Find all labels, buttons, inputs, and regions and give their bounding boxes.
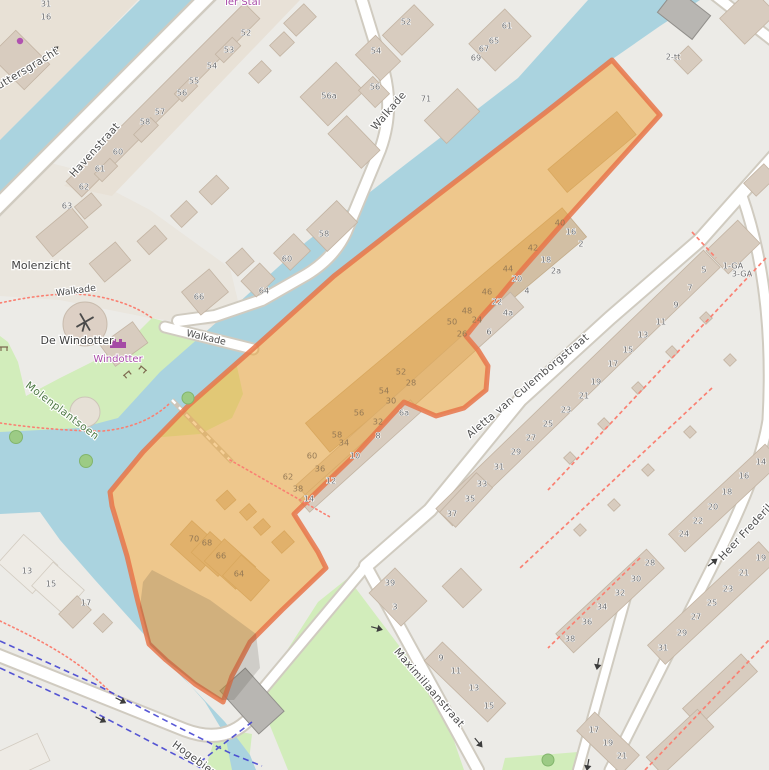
house-number: 33	[477, 479, 487, 489]
house-number: 13	[469, 683, 479, 693]
house-number: 62	[79, 182, 89, 192]
house-number: 22	[693, 516, 703, 526]
house-number: 53	[224, 45, 234, 55]
house-number: 32	[615, 588, 625, 598]
house-number: 16	[41, 12, 51, 22]
house-number: 40	[555, 218, 565, 228]
house-number: 17	[589, 725, 599, 735]
house-number: 4a	[503, 308, 513, 318]
house-number: 21	[617, 751, 627, 761]
poi-label: Windotter	[93, 354, 143, 365]
house-number: 17	[608, 359, 618, 369]
house-number: 66	[194, 292, 204, 302]
house-number: 15	[623, 345, 633, 355]
house-number: 54	[371, 46, 381, 56]
house-number: 22	[492, 297, 502, 307]
house-number: 27	[526, 433, 536, 443]
house-number: 35	[465, 494, 475, 504]
house-number: 13	[22, 566, 32, 576]
place-label: Molenzicht	[11, 259, 71, 272]
house-number: 58	[319, 229, 329, 239]
house-number: 60	[113, 147, 123, 157]
house-number: 3	[392, 602, 397, 612]
house-number: 34	[597, 602, 607, 612]
house-number: 21	[579, 391, 589, 401]
house-number: 28	[645, 558, 655, 568]
house-number: 16	[566, 227, 576, 237]
house-number: 5	[701, 265, 706, 275]
house-number: 15	[484, 701, 494, 711]
house-number: 9	[438, 653, 443, 663]
house-number: 65	[489, 36, 499, 46]
house-number: 38	[565, 634, 575, 644]
house-number: 36	[582, 617, 592, 627]
house-number: 56	[177, 88, 187, 98]
house-number: 23	[723, 584, 733, 594]
house-number: 31	[41, 0, 51, 9]
house-number: 31	[658, 643, 668, 653]
house-number: 27	[691, 612, 701, 622]
house-number: 14	[756, 457, 766, 467]
house-number: 19	[756, 553, 766, 563]
house-number: 3-GA	[732, 269, 753, 279]
house-number: 28	[406, 378, 416, 388]
house-number: 2	[578, 239, 583, 249]
house-number: 26	[457, 329, 467, 339]
house-number: 42	[528, 243, 538, 253]
house-number: 66	[216, 551, 226, 561]
house-number: 14	[304, 494, 314, 504]
house-number: 2a	[551, 266, 561, 276]
house-number: 54	[207, 61, 217, 71]
house-number: 61	[95, 164, 105, 174]
house-number: 16	[739, 471, 749, 481]
house-number: 46	[482, 287, 492, 297]
house-number: 56	[354, 408, 364, 418]
house-number: 58	[140, 117, 150, 127]
house-number: 34	[339, 438, 349, 448]
house-number: 21	[739, 568, 749, 578]
house-number: 7	[687, 283, 692, 293]
house-number: 11	[656, 317, 666, 327]
house-number: 55	[189, 76, 199, 86]
house-number: 37	[447, 509, 457, 519]
tree-icon	[542, 754, 554, 766]
tree-icon	[10, 431, 23, 444]
house-number: 29	[677, 628, 687, 638]
tree-icon	[182, 392, 194, 404]
place-label: De Windotter	[40, 334, 114, 347]
house-number: 19	[603, 738, 613, 748]
house-number: 31	[494, 462, 504, 472]
house-number: 24	[679, 529, 689, 539]
house-number: 71	[421, 94, 431, 104]
house-number: 38	[293, 484, 303, 494]
house-number: 69	[471, 53, 481, 63]
house-number: 62	[283, 472, 293, 482]
house-number: 20	[512, 274, 522, 284]
house-number: 70	[189, 534, 199, 544]
house-number: 63	[62, 201, 72, 211]
house-number: 50	[447, 317, 457, 327]
tree-icon	[80, 455, 93, 468]
house-number: 20	[708, 502, 718, 512]
house-number: 2-tt	[666, 52, 681, 62]
house-number: 18	[722, 487, 732, 497]
house-number: 36	[315, 464, 325, 474]
house-number: 52	[401, 17, 411, 27]
house-number: 52	[396, 367, 406, 377]
house-number: 23	[561, 405, 571, 415]
house-number: 30	[631, 574, 641, 584]
house-number: 6a	[399, 408, 409, 418]
house-number: 17	[81, 598, 91, 608]
house-number: 64	[234, 569, 244, 579]
house-number: 18	[541, 255, 551, 265]
house-number: 13	[638, 330, 648, 340]
house-number: 29	[511, 447, 521, 457]
house-number: 11	[451, 666, 461, 676]
house-number: 68	[202, 538, 212, 548]
house-number: 25	[707, 598, 717, 608]
house-number: 60	[282, 254, 292, 264]
house-number: 64	[259, 286, 269, 296]
house-number: 30	[386, 396, 396, 406]
house-number: 9	[673, 300, 678, 310]
house-number: 25	[543, 419, 553, 429]
poi-label: Ter Stal	[222, 0, 260, 8]
house-number: 10	[350, 451, 360, 461]
house-number: 44	[503, 264, 513, 274]
house-number: 54	[379, 386, 389, 396]
house-number: 57	[155, 107, 165, 117]
house-number: 56	[370, 82, 380, 92]
house-number: 12	[326, 476, 336, 486]
house-number: 8	[375, 431, 380, 441]
house-number: 48	[462, 306, 472, 316]
house-number: 24	[472, 315, 482, 325]
map-canvas[interactable]: HavenstraatSchuttersgrachtWalkadeAletta …	[0, 0, 769, 770]
house-number: 60	[307, 451, 317, 461]
house-number: 19	[591, 377, 601, 387]
house-number: 61	[502, 21, 512, 31]
house-number: 52	[241, 28, 251, 38]
house-number: 39	[385, 578, 395, 588]
shop-poi-dot	[17, 38, 23, 44]
house-number: 4	[524, 286, 529, 296]
house-number: 6	[486, 327, 491, 337]
house-number: 56a	[321, 91, 336, 101]
house-number: 32	[373, 417, 383, 427]
house-number: 15	[46, 579, 56, 589]
